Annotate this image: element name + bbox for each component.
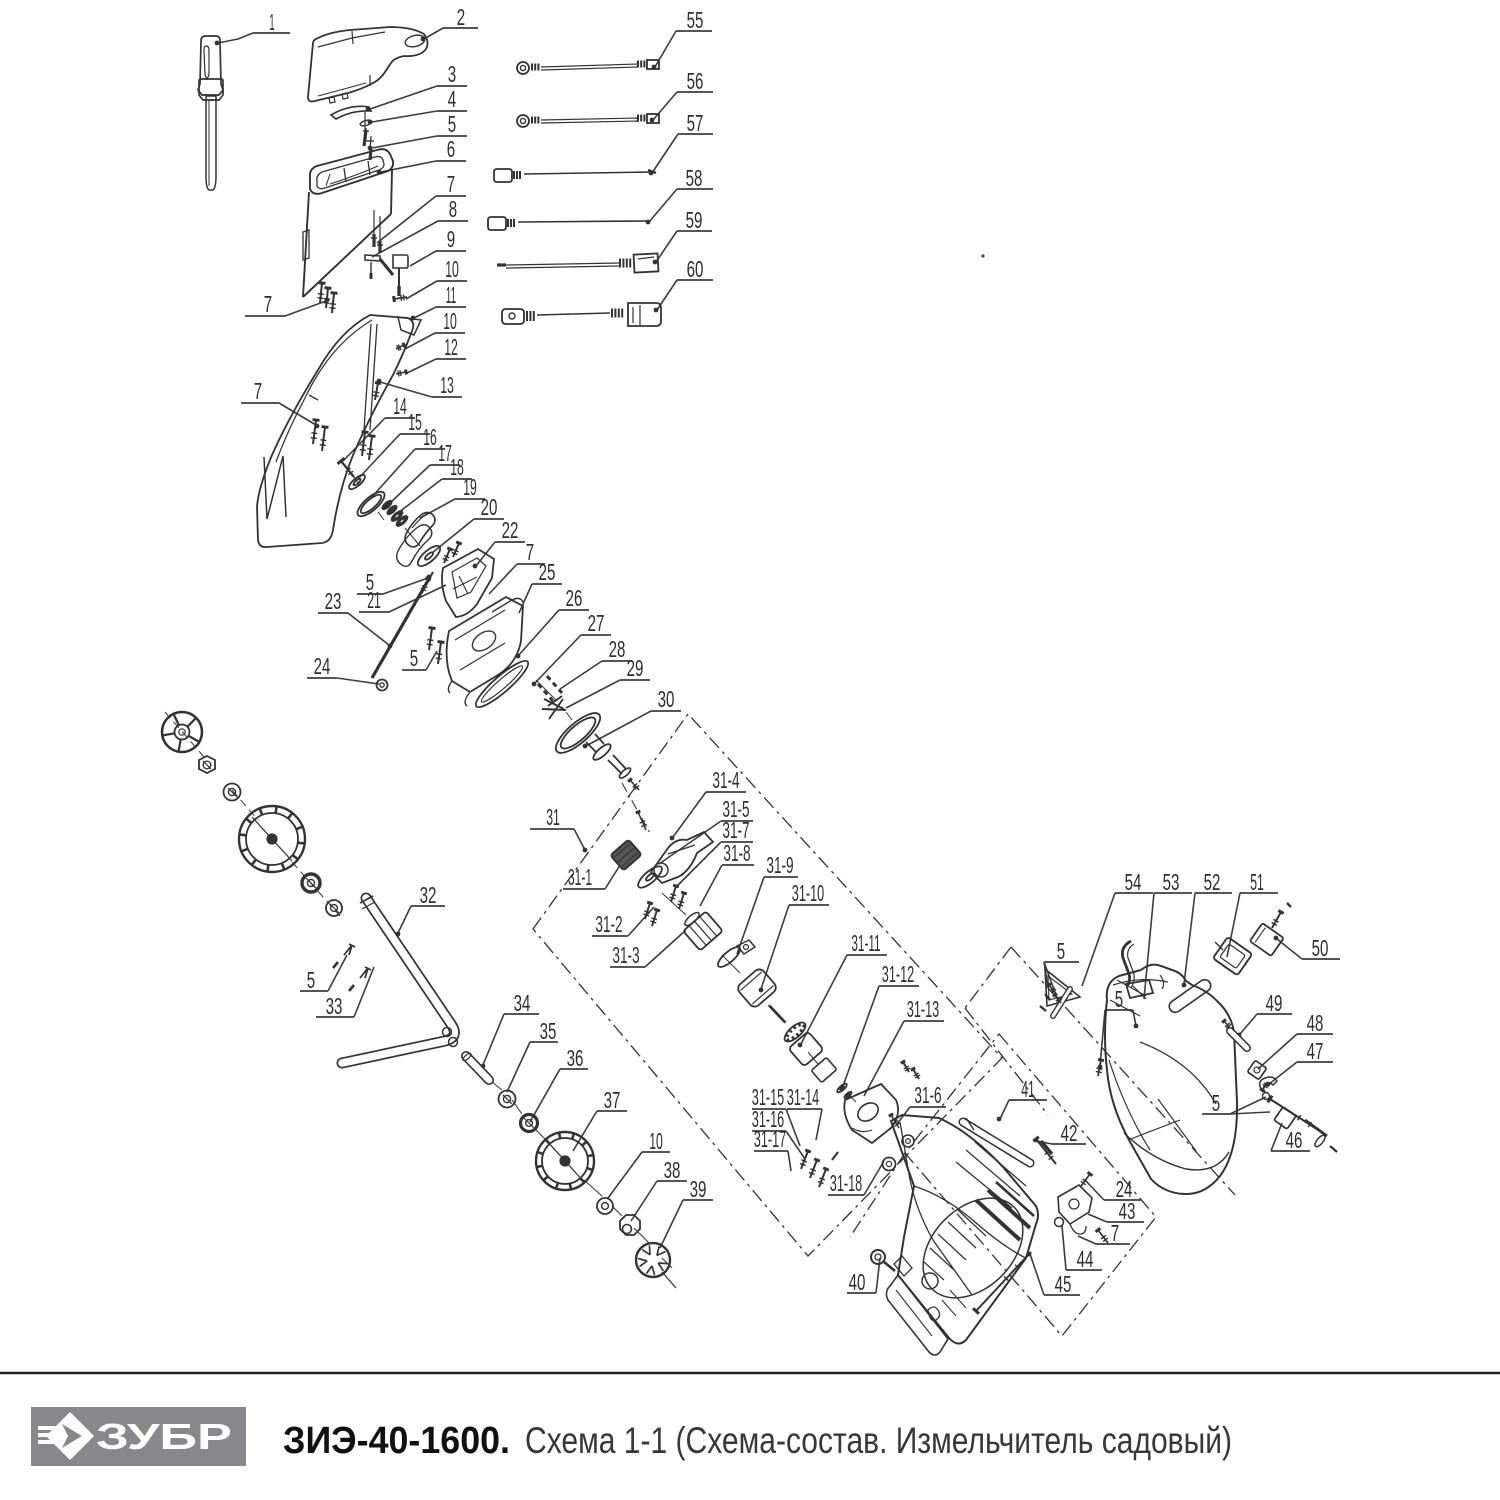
svg-text:47: 47 [1307,1038,1324,1064]
svg-text:9: 9 [447,226,455,252]
svg-text:10: 10 [443,308,457,334]
svg-text:7: 7 [264,291,272,317]
svg-text:60: 60 [687,256,704,282]
svg-text:5: 5 [410,645,418,671]
svg-text:11: 11 [446,282,456,308]
svg-text:46: 46 [1286,1127,1303,1153]
svg-text:1: 1 [269,9,274,35]
svg-text:15: 15 [408,409,422,435]
svg-text:31-13: 31-13 [907,996,939,1022]
svg-text:7: 7 [447,171,455,197]
svg-text:45: 45 [1055,1271,1072,1297]
svg-text:19: 19 [463,474,477,500]
svg-text:52: 52 [1204,869,1221,895]
svg-text:5: 5 [1057,938,1065,964]
svg-text:31-2: 31-2 [595,911,622,937]
svg-text:23: 23 [325,588,342,614]
svg-text:31: 31 [546,804,560,830]
svg-text:20: 20 [481,494,498,520]
svg-text:31-12: 31-12 [882,961,914,987]
svg-text:54: 54 [1125,869,1142,895]
svg-text:50: 50 [1312,935,1329,961]
svg-text:12: 12 [444,334,458,360]
svg-text:58: 58 [686,165,703,191]
svg-text:ЗУБР: ЗУБР [96,1416,232,1457]
svg-text:10: 10 [445,256,459,282]
svg-text:32: 32 [420,882,437,908]
svg-text:31-1: 31-1 [568,864,592,890]
svg-text:31-8: 31-8 [723,840,750,866]
svg-text:24: 24 [314,653,331,679]
svg-text:7: 7 [1111,1220,1119,1246]
svg-text:31-9: 31-9 [766,852,793,878]
svg-text:51: 51 [1250,869,1264,895]
svg-text:33: 33 [326,993,343,1019]
svg-text:31-17: 31-17 [754,1126,786,1152]
svg-text:4: 4 [448,86,457,112]
svg-text:35: 35 [540,1018,557,1044]
svg-text:2: 2 [457,4,465,30]
svg-text:27: 27 [588,610,605,636]
svg-text:8: 8 [449,196,457,222]
svg-text:18: 18 [450,454,464,480]
svg-text:26: 26 [566,585,583,611]
svg-text:57: 57 [687,110,704,136]
svg-text:43: 43 [1119,1198,1136,1224]
svg-text:37: 37 [604,1087,621,1113]
svg-text:28: 28 [609,636,626,662]
svg-text:44: 44 [1077,1246,1094,1272]
svg-text:53: 53 [1163,869,1180,895]
svg-text:49: 49 [1266,990,1283,1016]
svg-text:10: 10 [649,1128,663,1154]
svg-text:34: 34 [514,990,531,1016]
svg-text:29: 29 [627,655,644,681]
svg-text:13: 13 [440,372,454,398]
svg-text:31-6: 31-6 [914,1082,941,1108]
svg-text:48: 48 [1307,1010,1324,1036]
svg-text:14: 14 [393,393,407,419]
svg-text:6: 6 [447,136,455,162]
svg-text:31-18: 31-18 [830,1170,862,1196]
svg-text:22: 22 [502,517,519,543]
svg-text:25: 25 [539,559,556,585]
svg-text:5: 5 [448,111,456,137]
svg-text:59: 59 [686,207,703,233]
svg-text:5: 5 [307,967,315,993]
svg-text:7: 7 [526,539,534,565]
svg-text:36: 36 [567,1045,584,1071]
svg-text:7: 7 [254,378,262,404]
svg-text:21: 21 [367,587,381,613]
svg-text:31-11: 31-11 [851,930,880,956]
svg-text:40: 40 [849,1269,866,1295]
svg-text:30: 30 [658,686,675,712]
svg-text:31-4: 31-4 [712,767,739,793]
svg-text:56: 56 [687,68,704,94]
svg-text:55: 55 [687,7,704,33]
svg-text:3: 3 [448,61,456,87]
svg-text:31-14: 31-14 [787,1084,820,1110]
svg-text:39: 39 [690,1176,707,1202]
svg-text:31-3: 31-3 [612,942,639,968]
svg-text:16: 16 [423,424,437,450]
svg-text:ЗИЭ-40-1600.: ЗИЭ-40-1600. [283,1420,510,1462]
svg-text:Схема 1-1 (Схема-состав. Измел: Схема 1-1 (Схема-состав. Измельчитель са… [525,1420,1232,1461]
svg-text:31-10: 31-10 [792,880,824,906]
svg-text:38: 38 [664,1157,681,1183]
svg-text:5: 5 [1115,986,1123,1012]
svg-text:42: 42 [1061,1120,1078,1146]
